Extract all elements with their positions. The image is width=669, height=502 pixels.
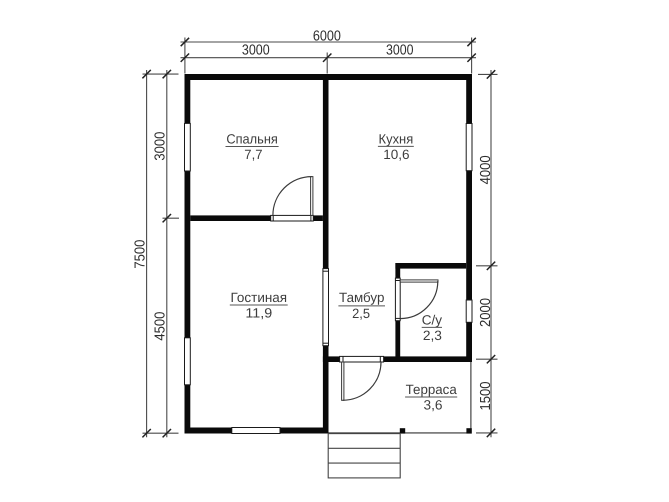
svg-text:4500: 4500: [153, 312, 169, 341]
svg-text:7500: 7500: [133, 240, 149, 269]
svg-text:3000: 3000: [386, 43, 414, 59]
svg-text:7,7: 7,7: [244, 147, 262, 162]
svg-text:Кухня: Кухня: [379, 131, 414, 146]
svg-text:Тамбур: Тамбур: [339, 290, 384, 305]
svg-text:4000: 4000: [478, 155, 494, 184]
svg-text:3000: 3000: [242, 43, 270, 59]
svg-text:Терраса: Терраса: [406, 382, 458, 397]
svg-text:Спальня: Спальня: [226, 132, 278, 147]
svg-text:11,9: 11,9: [245, 306, 272, 321]
svg-text:3,6: 3,6: [424, 398, 443, 413]
svg-text:2000: 2000: [478, 298, 494, 327]
svg-text:10,6: 10,6: [383, 147, 409, 162]
svg-text:1500: 1500: [478, 382, 494, 411]
svg-text:Гостиная: Гостиная: [231, 290, 288, 305]
svg-text:3000: 3000: [153, 132, 169, 161]
svg-text:2,5: 2,5: [352, 306, 370, 321]
svg-text:С/у: С/у: [422, 313, 443, 328]
svg-text:6000: 6000: [313, 29, 341, 45]
svg-text:2,3: 2,3: [423, 328, 442, 343]
